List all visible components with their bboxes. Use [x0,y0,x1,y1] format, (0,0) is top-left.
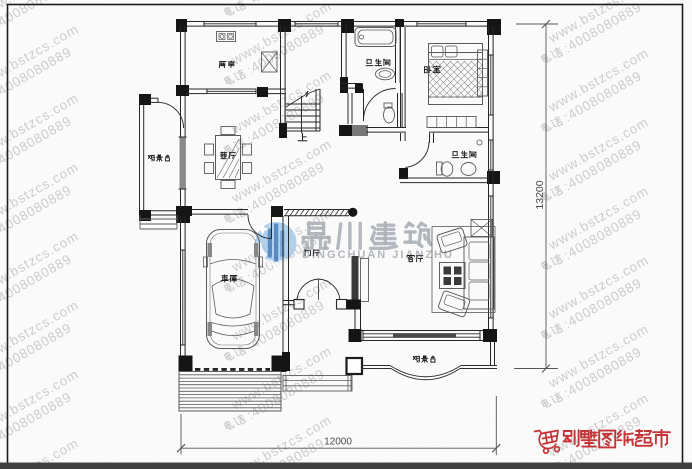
svg-text:12000: 12000 [324,437,352,448]
svg-text:13200: 13200 [534,180,546,209]
svg-text:DINGCHUAN JIANZHU: DINGCHUAN JIANZHU [302,249,454,261]
